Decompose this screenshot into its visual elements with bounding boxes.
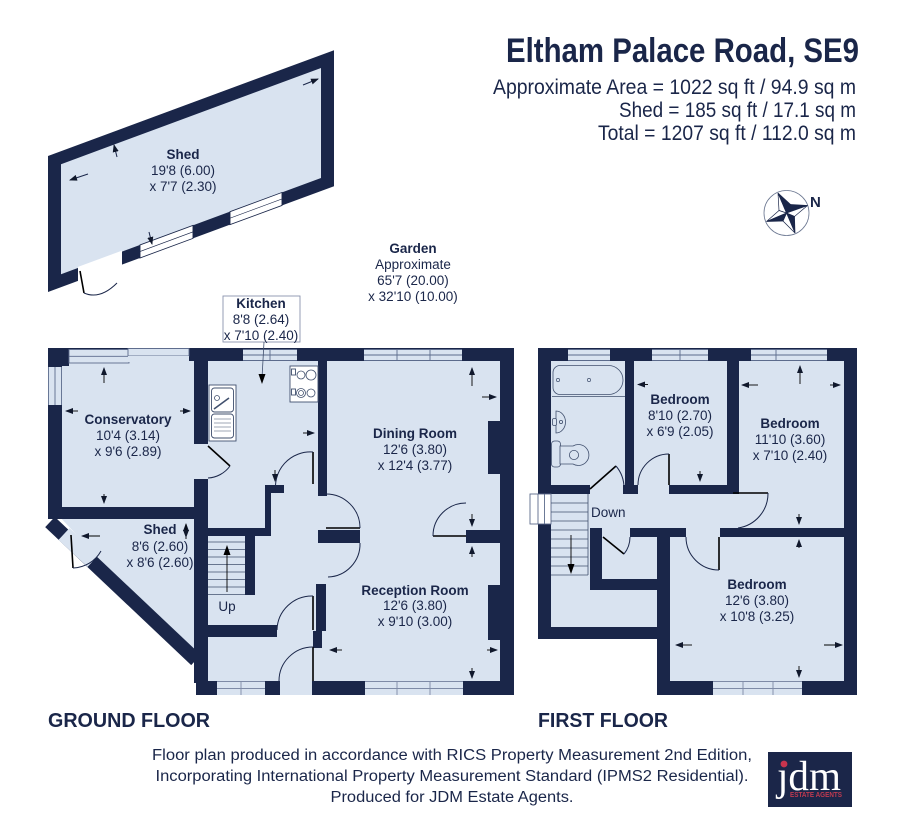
svg-text:Floor plan produced in accorda: Floor plan produced in accordance with R…	[152, 747, 752, 764]
svg-text:Approximate Area = 1022 sq ft: Approximate Area = 1022 sq ft / 94.9 sq …	[493, 76, 856, 99]
svg-text:Bedroom: Bedroom	[650, 392, 709, 407]
svg-text:ESTATE AGENTS: ESTATE AGENTS	[790, 792, 842, 799]
svg-text:x 10'8 (3.25): x 10'8 (3.25)	[720, 609, 795, 624]
svg-text:Shed: Shed	[143, 522, 176, 537]
svg-text:Kitchen: Kitchen	[236, 296, 286, 311]
svg-text:8'6 (2.60): 8'6 (2.60)	[132, 539, 189, 554]
svg-text:19'8 (6.00): 19'8 (6.00)	[151, 163, 215, 178]
svg-text:x 6'9 (2.05): x 6'9 (2.05)	[646, 424, 713, 439]
svg-text:Approximate: Approximate	[375, 257, 451, 272]
svg-text:Shed = 185 sq ft / 17.1 sq m: Shed = 185 sq ft / 17.1 sq m	[619, 99, 856, 122]
svg-text:Bedroom: Bedroom	[727, 577, 786, 592]
svg-text:Eltham Palace Road, SE9: Eltham Palace Road, SE9	[506, 32, 859, 70]
svg-text:10'4 (3.14): 10'4 (3.14)	[96, 428, 160, 443]
svg-text:x 9'10 (3.00): x 9'10 (3.00)	[378, 614, 453, 629]
svg-text:GROUND FLOOR: GROUND FLOOR	[48, 710, 211, 732]
svg-text:Total = 1207 sq ft / 112.0 sq: Total = 1207 sq ft / 112.0 sq m	[598, 122, 856, 145]
svg-text:12'6 (3.80): 12'6 (3.80)	[725, 593, 789, 608]
svg-text:x 12'4 (3.77): x 12'4 (3.77)	[378, 458, 453, 473]
svg-text:8'10 (2.70): 8'10 (2.70)	[648, 408, 712, 423]
svg-text:65'7 (20.00): 65'7 (20.00)	[377, 273, 449, 288]
svg-text:8'8 (2.64): 8'8 (2.64)	[233, 312, 290, 327]
svg-text:Up: Up	[218, 599, 235, 614]
svg-text:FIRST FLOOR: FIRST FLOOR	[538, 710, 669, 732]
svg-text:x 9'6 (2.89): x 9'6 (2.89)	[94, 444, 161, 459]
svg-text:Bedroom: Bedroom	[760, 416, 819, 431]
svg-text:Down: Down	[591, 505, 626, 520]
svg-text:Conservatory: Conservatory	[84, 412, 172, 427]
svg-text:Reception Room: Reception Room	[361, 583, 468, 598]
svg-text:x 7'7 (2.30): x 7'7 (2.30)	[149, 179, 216, 194]
svg-text:x 7'10 (2.40): x 7'10 (2.40)	[224, 328, 299, 343]
svg-text:x 7'10 (2.40): x 7'10 (2.40)	[753, 448, 828, 463]
svg-text:12'6 (3.80): 12'6 (3.80)	[383, 442, 447, 457]
svg-text:x 32'10 (10.00): x 32'10 (10.00)	[368, 289, 458, 304]
svg-text:Dining Room: Dining Room	[373, 426, 457, 441]
svg-text:11'10 (3.60): 11'10 (3.60)	[755, 432, 826, 447]
svg-text:Garden: Garden	[389, 241, 436, 256]
svg-text:12'6 (3.80): 12'6 (3.80)	[383, 598, 447, 613]
svg-text:Incorporating International Pr: Incorporating International Property Mea…	[156, 768, 749, 785]
svg-text:Produced for JDM Estate Agents: Produced for JDM Estate Agents.	[331, 789, 574, 806]
svg-text:Shed: Shed	[166, 147, 199, 162]
svg-text:x 8'6 (2.60): x 8'6 (2.60)	[126, 555, 193, 570]
svg-text:N: N	[810, 194, 821, 211]
